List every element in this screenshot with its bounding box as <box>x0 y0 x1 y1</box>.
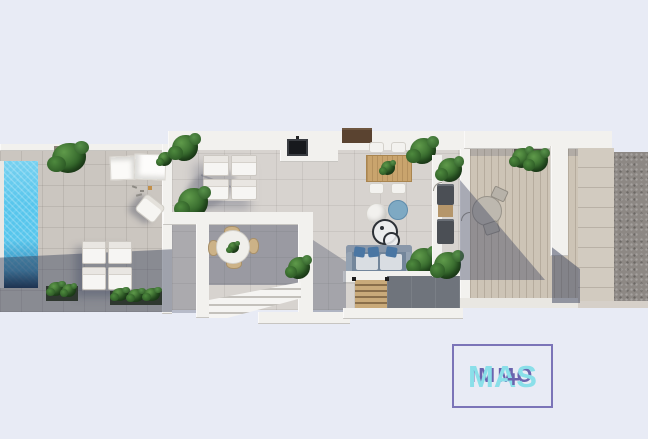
logo-line2-text: MAS <box>468 359 537 394</box>
pergola-right-wall <box>298 224 313 322</box>
deck-table <box>472 196 502 226</box>
side-shadow <box>172 225 196 313</box>
armchair <box>134 193 166 224</box>
sofa-pillow <box>353 246 365 257</box>
sun-lounger <box>82 267 106 290</box>
tv-screen <box>287 139 308 156</box>
wooden-steps <box>355 280 387 313</box>
planter-box <box>514 149 546 159</box>
dining-table <box>366 155 412 182</box>
pouf-white <box>366 203 388 225</box>
door-swing <box>433 182 442 191</box>
tv-mount <box>296 136 299 139</box>
terrace-chair <box>226 258 242 269</box>
logo-plus-icon: + <box>507 369 520 391</box>
kitchen-right-wall <box>460 149 470 304</box>
living-bottom-wall <box>343 271 463 283</box>
kitchen-unit <box>437 184 454 205</box>
sun-lounger <box>82 241 106 264</box>
planter-plant <box>526 150 548 172</box>
pergola-top-beam <box>163 212 313 225</box>
deck-chair <box>483 220 501 236</box>
terrace-chair <box>224 226 240 237</box>
deck-shadow <box>460 180 545 280</box>
potted-plant <box>438 158 462 182</box>
decor-mark <box>148 186 152 190</box>
gravel-strip <box>614 152 648 302</box>
door-swing <box>461 212 470 221</box>
decor-mark <box>140 190 144 192</box>
planter-box <box>54 146 84 158</box>
coffee-table-tray <box>383 232 400 249</box>
patio-dark-floor <box>387 276 462 308</box>
potted-plant <box>158 152 172 166</box>
tv-wall <box>280 150 338 162</box>
sun-lounger-group <box>203 155 259 201</box>
sun-lounger <box>203 155 229 176</box>
palm-shadow <box>177 161 242 217</box>
sofa-pillow <box>385 246 398 258</box>
terrace-chair <box>208 240 219 256</box>
sun-lounger-group <box>82 241 134 291</box>
terrace-top-wall <box>0 144 168 151</box>
potted-plant <box>434 252 461 279</box>
sofa-cushion <box>356 254 378 270</box>
stone-bottom-strip <box>578 301 648 308</box>
palm-shadow-frond <box>196 185 225 196</box>
deck-white-slab <box>550 146 568 256</box>
kitchen-unit <box>437 219 454 244</box>
step-marker <box>352 277 356 281</box>
sketch-sheet <box>110 156 137 181</box>
sun-lounger <box>203 179 229 200</box>
dining-chair <box>369 183 384 194</box>
sofa <box>346 245 412 275</box>
potted-plant <box>410 248 436 274</box>
decor-mark <box>136 193 142 196</box>
deck-top-shadow <box>470 149 578 156</box>
sideboard <box>342 128 372 143</box>
step-marker <box>385 308 389 312</box>
logo-line2: MAS + <box>468 362 537 391</box>
pergola-floor-shadow <box>209 225 298 285</box>
stair-bottom-wall <box>258 312 350 324</box>
step-marker <box>352 308 356 312</box>
kitchen-left-wall <box>432 155 442 277</box>
terrace-table <box>216 230 250 264</box>
patio-bottom-wall <box>343 308 463 319</box>
dining-chair <box>391 142 406 153</box>
decor-mark <box>132 185 137 189</box>
table-plant <box>228 242 239 253</box>
terrace-chair <box>248 238 259 254</box>
coffee-table <box>372 219 398 245</box>
potted-plant <box>178 188 208 218</box>
potted-plant <box>172 135 198 161</box>
sofa-cushion <box>380 254 402 270</box>
potted-plant <box>52 143 86 173</box>
kitchen-counter <box>438 205 453 217</box>
dining-chair <box>369 142 384 153</box>
sketch-sheet <box>134 153 167 180</box>
sun-lounger <box>231 179 257 200</box>
potted-plant <box>410 138 436 164</box>
pergola-left-wall <box>196 224 209 318</box>
deck-bottom-band <box>460 298 578 308</box>
sun-lounger <box>108 241 132 264</box>
deck-floor <box>470 149 578 301</box>
palm-shadow-frond <box>201 174 231 188</box>
facade-top-wall <box>168 131 464 153</box>
deck-chair <box>490 185 509 202</box>
deck-top-wall <box>464 131 612 149</box>
potted-plant <box>288 257 310 279</box>
staircase <box>209 282 301 318</box>
floorplan-render: IMMO MAS + <box>0 0 648 439</box>
interior-floor <box>172 150 462 310</box>
sun-lounger <box>231 155 257 176</box>
sofa-pillow <box>368 246 380 257</box>
dining-chair <box>391 183 406 194</box>
wall-shadow-wedge <box>552 235 580 303</box>
table-plant <box>381 161 395 175</box>
planter-plant <box>512 148 532 168</box>
step-marker <box>385 277 389 281</box>
stair-shadow <box>313 240 346 312</box>
stone-wall-band <box>578 148 614 304</box>
pouf-blue <box>388 200 408 220</box>
table-decor <box>380 226 384 230</box>
immo-mas-logo: IMMO MAS + <box>452 344 553 408</box>
